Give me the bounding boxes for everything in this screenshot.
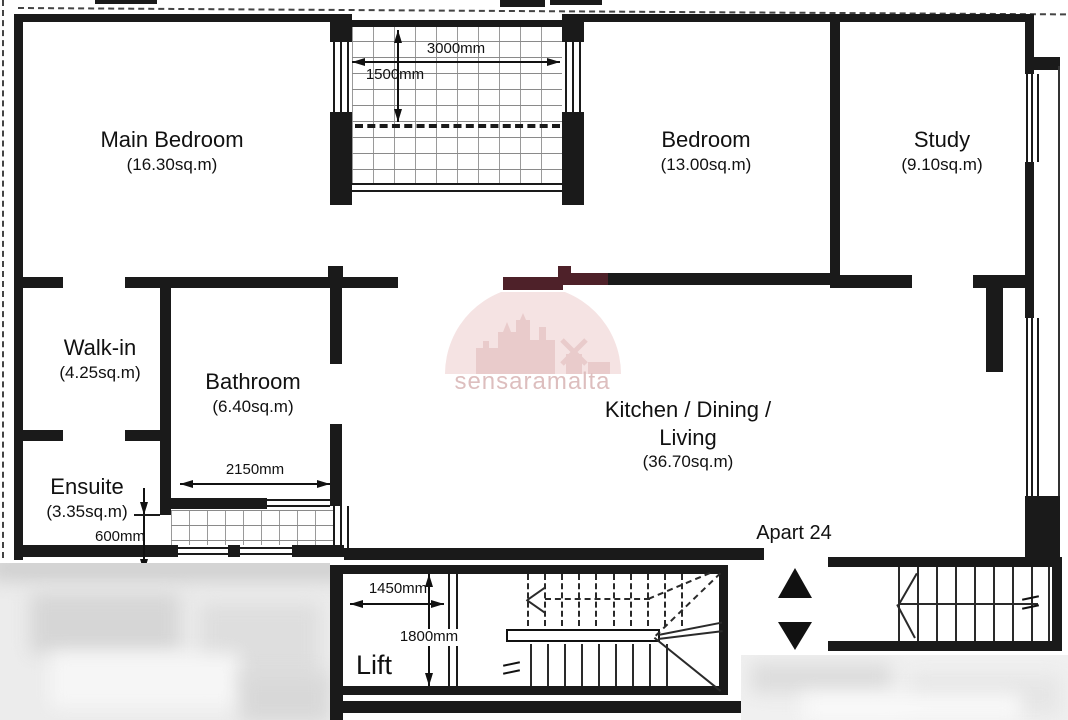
- stair-tread: [547, 644, 549, 686]
- wall-segment: [14, 14, 352, 22]
- room-name: Main Bedroom: [72, 126, 272, 154]
- window: [333, 506, 335, 550]
- room-name: Study: [852, 126, 1032, 154]
- stair-tread: [664, 574, 666, 626]
- window: [579, 42, 581, 112]
- room-area: (16.30sq.m): [72, 154, 272, 176]
- wall-segment: [328, 266, 343, 277]
- arrowhead: [350, 600, 363, 608]
- room-name: Walk-in: [20, 334, 180, 362]
- room-area: (6.40sq.m): [173, 396, 333, 418]
- wall-segment: [330, 424, 342, 506]
- arrowhead: [431, 600, 444, 608]
- arrowhead: [425, 574, 433, 587]
- wall-segment: [348, 20, 566, 27]
- stair-tread: [595, 574, 597, 626]
- wall-segment: [562, 14, 1032, 22]
- stair-break-mark: [503, 661, 520, 666]
- stair-tread: [630, 574, 632, 626]
- outer-face-line: [1058, 66, 1060, 496]
- wall-segment: [335, 565, 728, 574]
- wall-segment: [973, 275, 1033, 288]
- balcony-edge: [352, 183, 562, 185]
- wall-segment: [562, 22, 584, 42]
- watermark-logo: [438, 292, 628, 374]
- dim-balcony-depth: 1500mm: [359, 67, 431, 84]
- stair-handrail: [506, 629, 660, 642]
- dimension-line: [180, 483, 330, 485]
- window: [1037, 74, 1039, 162]
- room-name: Kitchen / Dining /: [578, 396, 798, 424]
- stair-tread: [564, 644, 566, 686]
- window: [340, 42, 342, 112]
- room-name: Bedroom: [606, 126, 806, 154]
- room-area: (13.00sq.m): [606, 154, 806, 176]
- arrowhead: [394, 109, 402, 122]
- wall-segment: [830, 22, 840, 285]
- dim-stairwell-depth: 1800mm: [398, 629, 460, 646]
- stair-direction-arrow: [898, 573, 918, 605]
- apartment-label: Apart 24: [738, 522, 850, 545]
- window: [347, 42, 349, 112]
- room-name: Bathroom: [173, 368, 333, 396]
- stair-tread: [1048, 567, 1050, 641]
- balcony-dashed-line: [355, 124, 560, 128]
- window: [240, 547, 292, 549]
- arrowhead: [394, 30, 402, 43]
- room-area: (36.70sq.m): [578, 451, 798, 473]
- room-label-ensuite: Ensuite (3.35sq.m): [12, 473, 162, 523]
- wall-segment: [1025, 162, 1034, 318]
- room-label-bathroom: Bathroom (6.40sq.m): [173, 368, 333, 418]
- offplan-fragment: [550, 0, 602, 5]
- wall-segment: [125, 277, 398, 288]
- stair-tread: [578, 574, 580, 626]
- wall-segment: [330, 565, 343, 720]
- window: [572, 42, 574, 112]
- wall-segment: [828, 557, 1062, 567]
- wall-segment: [330, 288, 342, 364]
- entrance-down-arrow: [778, 622, 812, 650]
- wall-segment: [828, 641, 1062, 651]
- wall-segment: [335, 701, 745, 713]
- wall-segment: [125, 430, 171, 441]
- wall-segment: [23, 277, 63, 288]
- window: [267, 499, 330, 501]
- room-label-bedroom: Bedroom (13.00sq.m): [606, 126, 806, 176]
- window: [267, 505, 330, 507]
- entrance-up-arrow: [778, 568, 812, 598]
- wall-segment: [1052, 557, 1062, 651]
- stair-walk-line: [648, 572, 711, 600]
- room-label-main-bedroom: Main Bedroom (16.30sq.m): [72, 126, 272, 176]
- wall-segment: [563, 273, 608, 285]
- dim-lightwell-depth: 600mm: [88, 529, 152, 546]
- dimension-line: [352, 61, 560, 63]
- window: [347, 506, 349, 550]
- watermark-text: sensaramalta: [440, 368, 625, 396]
- window: [1037, 318, 1039, 496]
- arrowhead: [352, 58, 365, 66]
- window: [1026, 318, 1028, 496]
- lightwell-tiles: [171, 510, 333, 545]
- room-area: (3.35sq.m): [12, 501, 162, 523]
- arrowhead: [317, 480, 330, 488]
- wall-segment: [23, 430, 63, 441]
- stair-walk-line: [545, 598, 650, 600]
- window: [240, 553, 292, 555]
- window: [333, 42, 335, 112]
- wall-segment: [830, 275, 912, 288]
- offplan-fragment: [95, 0, 157, 4]
- room-label-lift: Lift: [356, 650, 392, 681]
- wall-segment: [344, 548, 764, 560]
- arrowhead: [425, 673, 433, 686]
- wall-segment: [1030, 57, 1060, 70]
- stair-winder-line: [654, 637, 721, 692]
- room-name: Living: [578, 424, 798, 452]
- stair-tread: [681, 574, 683, 626]
- stair-tread: [632, 644, 634, 686]
- window: [178, 553, 228, 555]
- stair-tread: [649, 644, 651, 686]
- redacted-area-bottom-left: [0, 563, 330, 720]
- wall-segment: [330, 112, 352, 205]
- window: [565, 42, 567, 112]
- window: [340, 506, 342, 550]
- dim-balcony-width: 3000mm: [400, 41, 512, 58]
- room-label-kitchen: Kitchen / Dining / Living (36.70sq.m): [578, 396, 798, 473]
- redacted-area-bottom-right: [741, 655, 1068, 720]
- room-name: Ensuite: [12, 473, 162, 501]
- wall-segment: [608, 273, 832, 285]
- wall-segment: [160, 498, 280, 509]
- boundary-line-left: [2, 0, 4, 558]
- stair-tread: [544, 574, 546, 626]
- room-label-study: Study (9.10sq.m): [852, 126, 1032, 176]
- wall-segment: [330, 22, 352, 42]
- wall-segment: [1025, 496, 1060, 564]
- window: [1031, 318, 1033, 496]
- dim-bathroom-width: 2150mm: [200, 462, 310, 479]
- offplan-fragment: [500, 0, 545, 7]
- stair-break-mark: [503, 669, 520, 674]
- stair-tread: [581, 644, 583, 686]
- wall-segment: [503, 277, 563, 290]
- balcony-edge: [352, 190, 562, 192]
- arrowhead: [180, 480, 193, 488]
- floor-plan: 3000mm 1500mm 600mm 2150mm: [0, 0, 1068, 720]
- wall-segment: [335, 686, 728, 695]
- room-label-walk-in: Walk-in (4.25sq.m): [20, 334, 180, 384]
- stair-tread: [613, 574, 615, 626]
- stair-tread: [598, 644, 600, 686]
- window: [178, 547, 228, 549]
- wall-segment: [562, 112, 584, 205]
- stair-tread: [561, 574, 563, 626]
- room-area: (4.25sq.m): [20, 362, 180, 384]
- wall-pier: [986, 288, 1003, 372]
- arrowhead: [547, 58, 560, 66]
- stair-tread: [615, 644, 617, 686]
- stair-walk-line: [898, 603, 1038, 605]
- stair-tread: [530, 644, 532, 686]
- room-area: (9.10sq.m): [852, 154, 1032, 176]
